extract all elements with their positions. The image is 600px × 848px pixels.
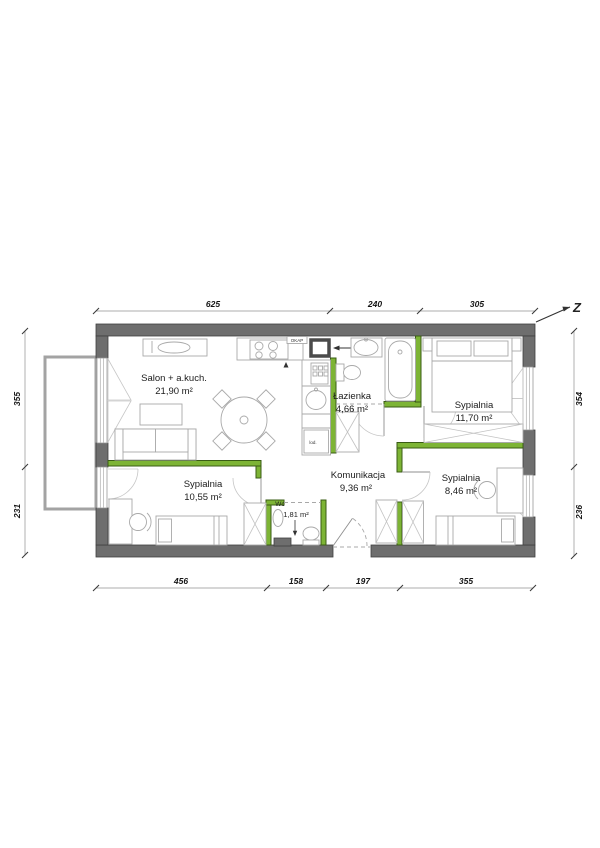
- shaft-arrow-icon: [333, 346, 352, 351]
- dimension-right: 354 236: [571, 328, 584, 559]
- ventilation-shaft: [311, 340, 329, 356]
- dim-bottom-3: 355: [459, 576, 473, 586]
- wardrobe-bedroom1: [424, 424, 523, 443]
- kitchen-hood-label: OKAP: [287, 337, 307, 344]
- counter-arrow-icon: [284, 362, 289, 368]
- door-bedroom3: [402, 472, 430, 500]
- room-sypialnia3-name: Sypialnia: [442, 473, 481, 484]
- dimension-top: 625 240 305: [93, 299, 538, 314]
- nightstand-right: [512, 338, 521, 351]
- dim-bottom-2: 197: [356, 576, 371, 586]
- toilet: [336, 364, 361, 381]
- floorplan-drawing: 625 240 305 Z 456 158 197 355 355 231 35…: [0, 0, 600, 848]
- floorplan-page: 625 240 305 Z 456 158 197 355 355 231 35…: [0, 0, 600, 848]
- north-arrow: Z: [536, 300, 582, 322]
- north-label: Z: [572, 300, 582, 315]
- room-sypialnia1-name: Sypialnia: [455, 400, 494, 411]
- room-sypialnia2-label: Sypialnia 10,55 m²: [184, 479, 223, 503]
- bathroom-sink: [351, 338, 382, 357]
- desk-bedroom3: [474, 468, 523, 513]
- kitchen-strip: lod.: [302, 360, 331, 455]
- dim-bottom-1: 158: [289, 576, 303, 586]
- desk-bedroom2: [109, 499, 151, 544]
- chair-bedroom2: [130, 514, 147, 531]
- room-salon-label: Salon + a.kuch. 21,90 m²: [141, 373, 207, 397]
- room-sypialnia2-area: 10,55 m²: [184, 492, 222, 503]
- room-lazienka-area: 4,66 m²: [336, 404, 368, 415]
- room-sypialnia3-area: 8,46 m²: [445, 486, 477, 497]
- door-bedroom2: [233, 478, 261, 506]
- room-salon-name: Salon + a.kuch.: [141, 373, 207, 384]
- bathtub: [385, 338, 416, 401]
- dim-top-2: 305: [470, 299, 484, 309]
- dim-bottom-0: 456: [173, 576, 188, 586]
- coffee-table: [140, 404, 182, 425]
- wardrobe-bedroom3: [403, 501, 424, 543]
- single-bed-bedroom3: [436, 516, 515, 545]
- room-salon-area: 21,90 m²: [155, 386, 193, 397]
- dim-top-0: 625: [206, 299, 220, 309]
- nightstand-left: [423, 338, 432, 351]
- wc-sink: [273, 510, 283, 527]
- washing-machine: [336, 412, 359, 452]
- wc-shaft: [274, 538, 291, 546]
- room-wc-area: 1,81 m²: [283, 510, 309, 519]
- room-komunikacja-label: Komunikacja 9,36 m²: [331, 470, 386, 494]
- dim-top-1: 240: [367, 299, 382, 309]
- room-sypialnia2-name: Sypialnia: [184, 479, 223, 490]
- room-komunikacja-area: 9,36 m²: [340, 483, 372, 494]
- dim-left-0: 355: [12, 392, 22, 406]
- fridge-label: lod.: [309, 440, 316, 445]
- dining-table-set: [213, 390, 275, 450]
- wc-toilet: [303, 527, 319, 545]
- sideboard-tv: [143, 339, 207, 356]
- door-entrance: [333, 518, 371, 547]
- dim-right-0: 354: [574, 392, 584, 406]
- chair-bedroom3: [479, 482, 496, 499]
- sofa: [115, 429, 196, 460]
- north-arrow-head: [562, 307, 570, 312]
- balcony: [45, 357, 96, 509]
- room-komunikacja-name: Komunikacja: [331, 470, 386, 481]
- dimension-bottom: 456 158 197 355: [93, 576, 536, 591]
- wardrobe-hall: [376, 500, 397, 543]
- wardrobe-bedroom2: [244, 503, 266, 545]
- dimension-left: 355 231: [12, 328, 28, 558]
- dim-right-1: 236: [574, 505, 584, 520]
- okap-text: OKAP: [291, 338, 304, 343]
- single-bed-bedroom2: [156, 516, 227, 545]
- room-lazienka-label: Łazienka 4,66 m²: [333, 391, 372, 415]
- room-wc-name: Wc: [275, 501, 285, 508]
- room-sypialnia1-area: 11,70 m²: [456, 413, 493, 424]
- dim-left-1: 231: [12, 504, 22, 519]
- wc-arrow-icon: [293, 520, 297, 536]
- room-lazienka-name: Łazienka: [333, 391, 372, 402]
